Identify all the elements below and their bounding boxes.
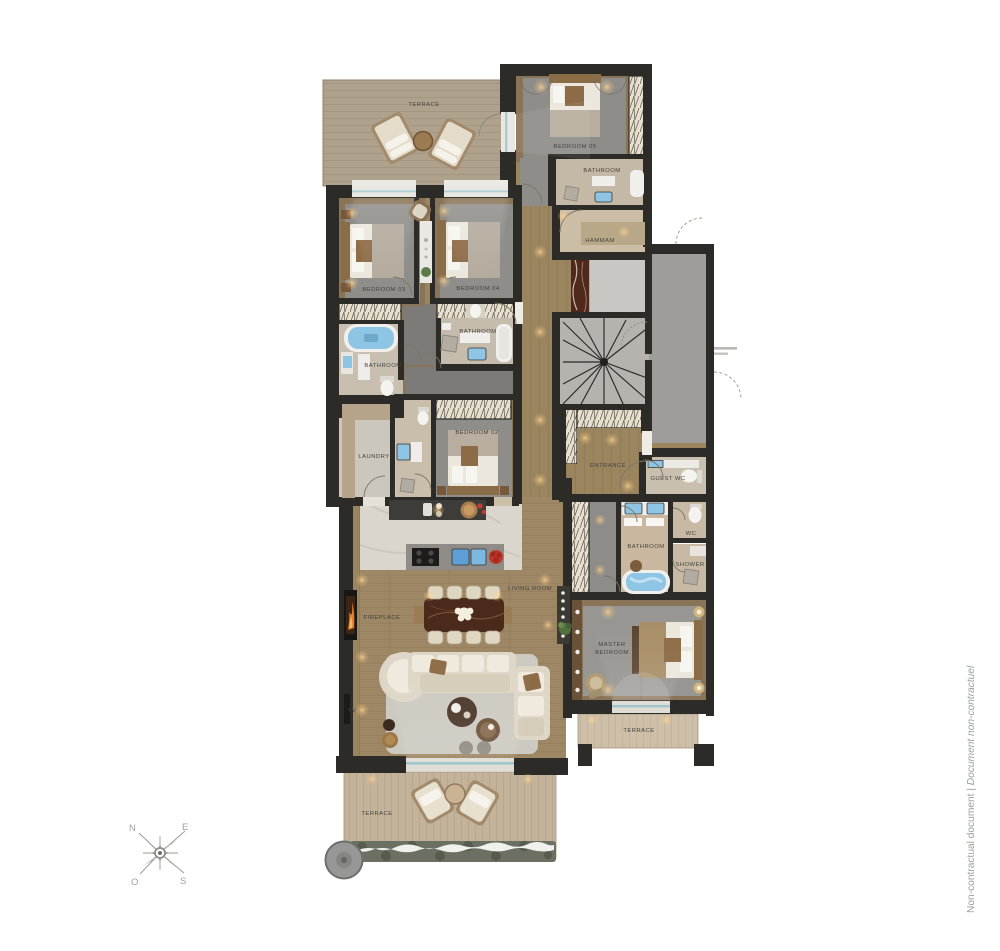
svg-text:LIVING ROOM: LIVING ROOM (508, 586, 552, 592)
svg-text:BEDROOM 02: BEDROOM 02 (455, 430, 498, 436)
svg-text:BATHROOM: BATHROOM (627, 544, 664, 550)
svg-text:TERRACE: TERRACE (361, 811, 392, 817)
svg-text:ENTRANCE: ENTRANCE (590, 463, 626, 469)
svg-text:TERRACE: TERRACE (623, 728, 654, 734)
svg-text:BEDROOM: BEDROOM (595, 650, 629, 656)
svg-text:N: N (129, 823, 136, 834)
svg-text:WC: WC (686, 531, 697, 537)
svg-text:E: E (182, 822, 188, 833)
svg-text:HAMMAM: HAMMAM (585, 238, 615, 244)
svg-text:TERRACE: TERRACE (408, 102, 439, 108)
svg-text:SHOWER: SHOWER (675, 562, 704, 568)
svg-text:FIREPLACE: FIREPLACE (364, 615, 401, 621)
svg-text:BATHROOM: BATHROOM (459, 329, 496, 335)
svg-text:BEDROOM 03: BEDROOM 03 (362, 287, 405, 293)
svg-text:S: S (180, 876, 186, 887)
svg-text:LAUNDRY: LAUNDRY (358, 454, 389, 460)
svg-text:MASTER: MASTER (598, 642, 625, 648)
svg-text:BEDROOM 04: BEDROOM 04 (456, 286, 499, 292)
svg-text:TV: TV (348, 708, 356, 714)
svg-text:BEDROOM 05: BEDROOM 05 (553, 144, 596, 150)
svg-text:BATHROOM: BATHROOM (583, 168, 620, 174)
svg-text:GUEST WC: GUEST WC (650, 476, 686, 482)
svg-text:Non-contractual document | Doc: Non-contractual document | Document non-… (966, 665, 977, 913)
svg-text:O: O (131, 877, 138, 888)
svg-text:BATHROOM: BATHROOM (364, 363, 401, 369)
